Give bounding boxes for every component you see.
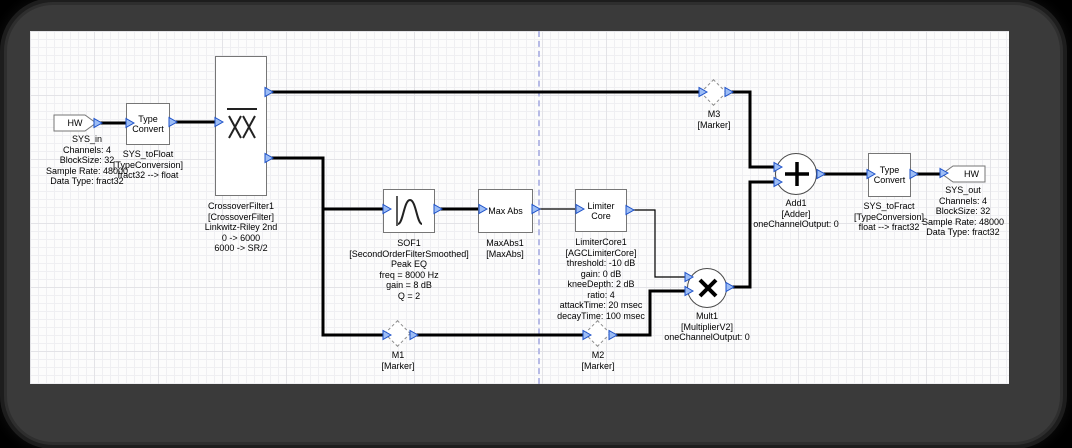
block-sys-tofloat-label: Type Convert	[132, 114, 164, 134]
block-sys-out[interactable]: HW	[941, 165, 986, 183]
peak-eq-curve-icon	[384, 189, 434, 233]
crossover-filter-icon	[216, 56, 266, 196]
caption-mult1: Mult1 [MultiplierV2] oneChannelOutput: 0	[647, 311, 767, 343]
block-maxabs[interactable]: Max Abs	[478, 189, 533, 233]
caption-crossover-filter: CrossoverFilter1 [CrossoverFilter] Linkw…	[181, 201, 301, 254]
block-sof1[interactable]	[383, 189, 435, 233]
caption-sys-out: SYS_out Channels: 4 BlockSize: 32 Sample…	[903, 185, 1023, 238]
caption-limiter-core: LimiterCore1 [AGCLimiterCore] threshold:…	[541, 237, 661, 321]
layout-guide-line	[538, 31, 540, 384]
plus-icon	[776, 153, 816, 195]
caption-m1: M1 [Marker]	[348, 350, 448, 371]
caption-m2: M2 [Marker]	[548, 350, 648, 371]
block-crossover-filter[interactable]	[215, 56, 267, 196]
block-sys-tofract-label: Type Convert	[874, 165, 906, 185]
block-limiter-core[interactable]: Limiter Core	[575, 189, 627, 232]
block-sys-tofloat[interactable]: Type Convert	[126, 103, 170, 145]
block-maxabs-label: Max Abs	[488, 206, 523, 216]
block-mult1[interactable]	[687, 268, 727, 308]
caption-m3: M3 [Marker]	[664, 109, 764, 130]
block-sys-in-label: HW	[53, 114, 105, 132]
screenshot-stage: HW SYS_in Channels: 4 BlockSize: 32 Samp…	[0, 0, 1072, 448]
caption-sys-tofloat: SYS_toFloat [TypeConversion] fract32 -->…	[88, 149, 208, 181]
block-sys-in[interactable]: HW	[53, 114, 97, 132]
block-add1[interactable]	[775, 153, 817, 195]
multiply-icon	[688, 268, 726, 308]
block-limiter-core-label: Limiter Core	[587, 201, 614, 221]
block-sys-out-label: HW	[941, 165, 994, 183]
